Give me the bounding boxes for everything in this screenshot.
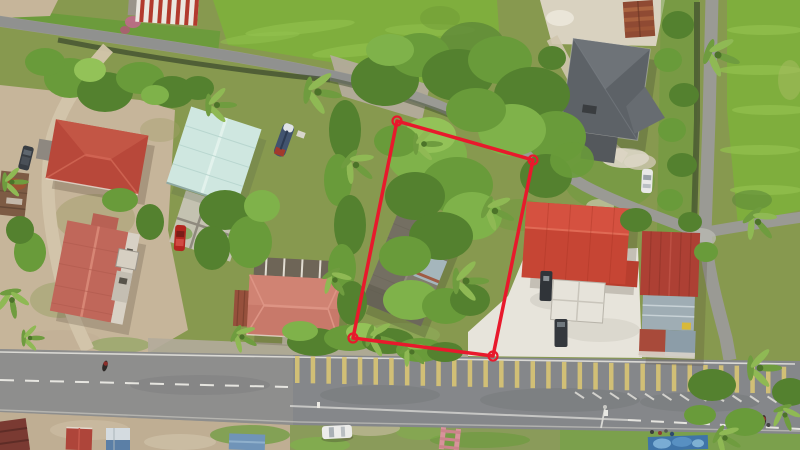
dark-van-2 [555, 319, 568, 347]
aerial-photo-canvas [0, 0, 800, 450]
dark-red-tarp-stall [0, 418, 30, 450]
white-canopy [551, 280, 606, 324]
dirt-corner-topleft [0, 0, 58, 18]
blue-tarp-stall [229, 433, 266, 450]
red-car [174, 225, 187, 252]
white-car-junction [641, 169, 653, 194]
red-stall [66, 428, 93, 450]
blue-banner-sign [648, 435, 708, 450]
white-car-bottom [321, 425, 354, 443]
ditch-vertical [694, 2, 697, 228]
blue-white-stall [106, 428, 130, 450]
rust-shed-topright [623, 0, 655, 38]
pink-bench [439, 427, 461, 450]
road-marker-post [317, 402, 320, 408]
aerial-photo [0, 0, 800, 450]
dark-van-1 [539, 271, 552, 301]
